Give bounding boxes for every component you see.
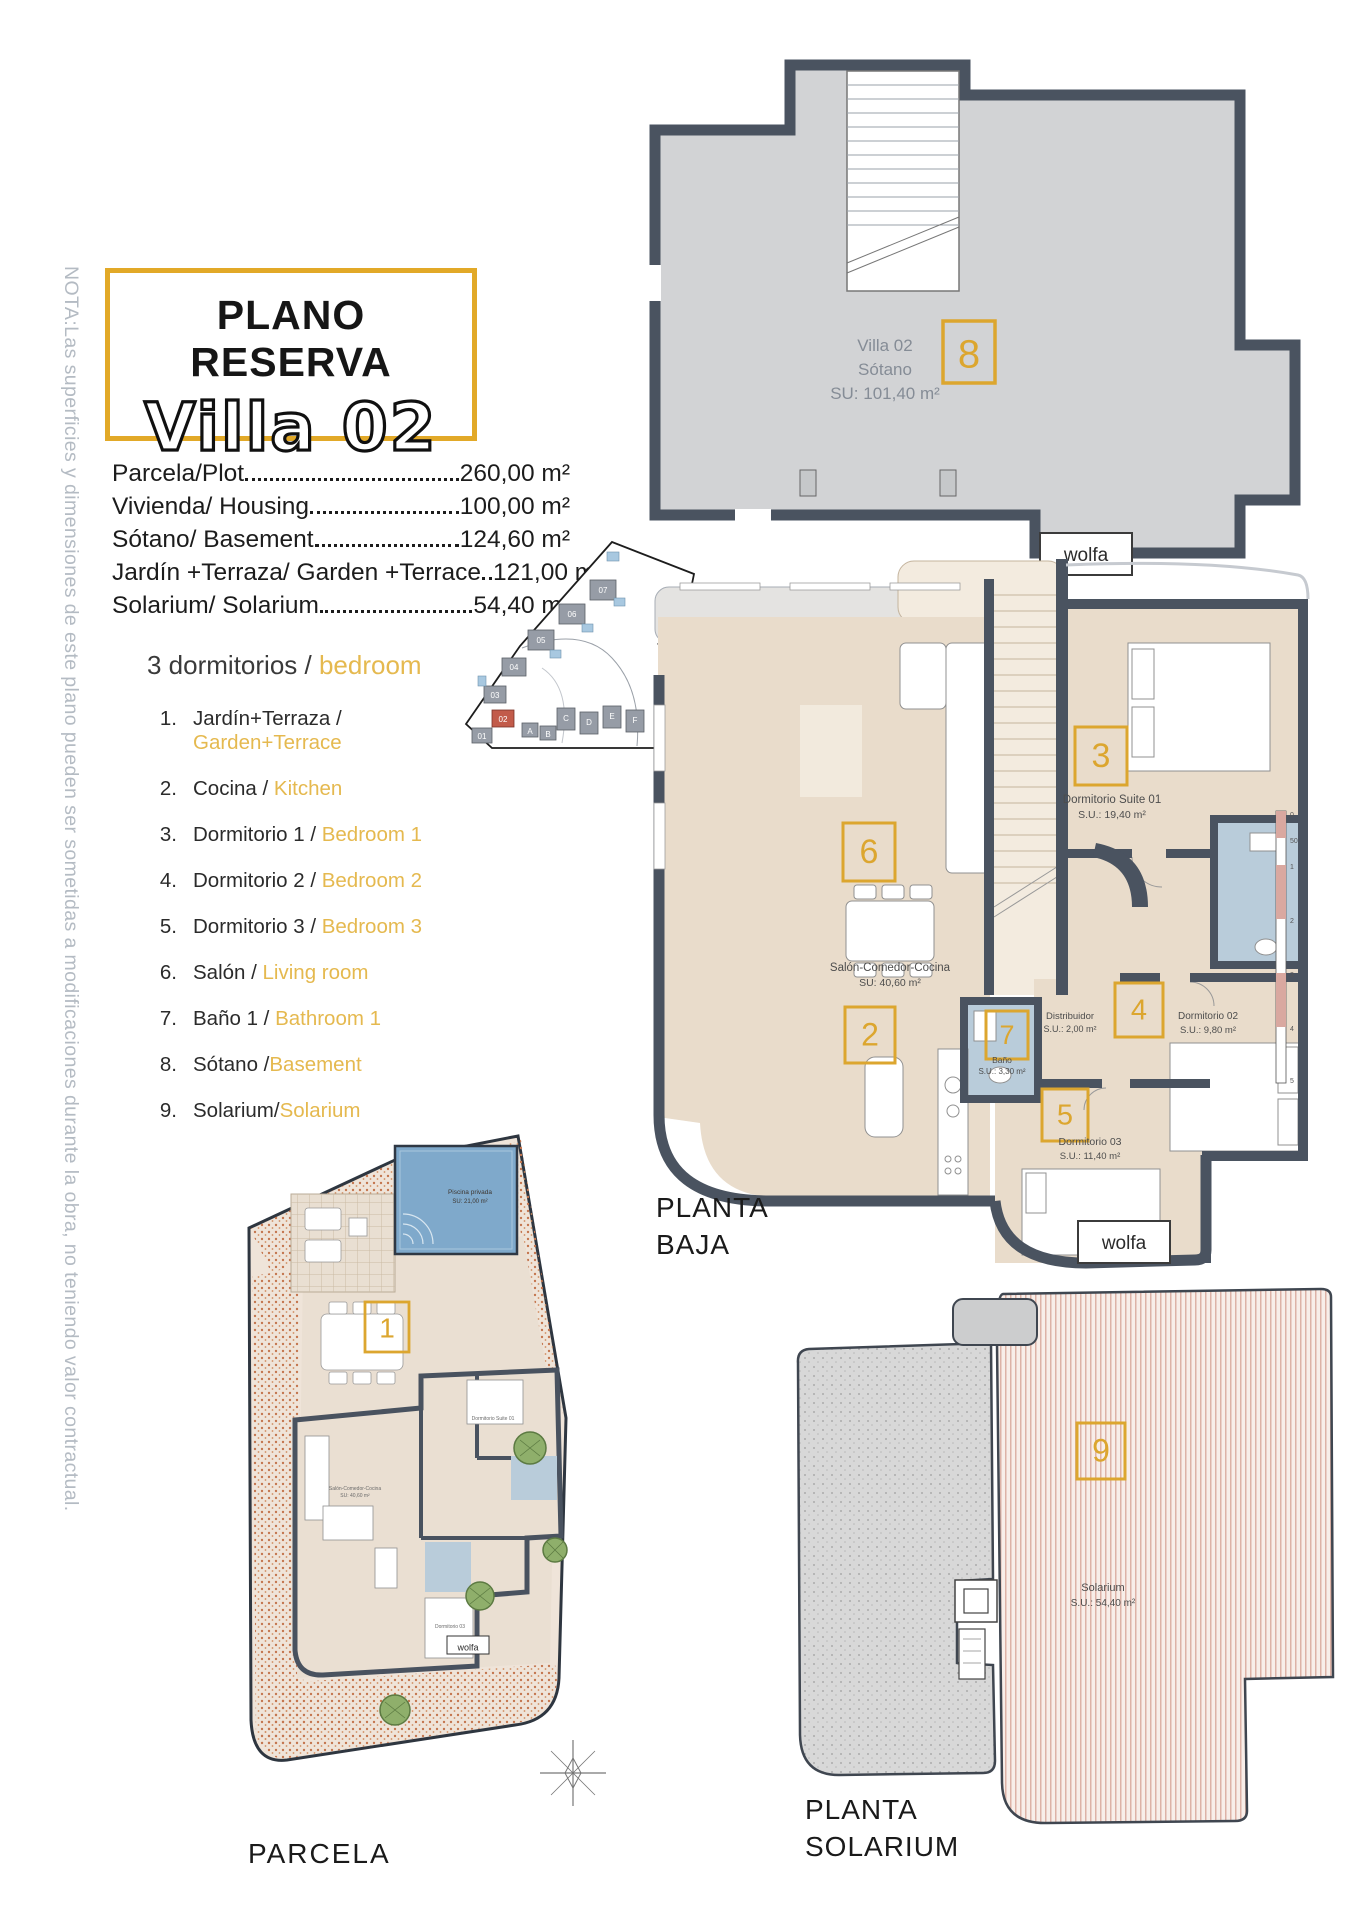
svg-text:F: F [633,716,638,725]
area-label: Parcela/Plot [112,460,244,487]
svg-text:Dormitorio Suite 01: Dormitorio Suite 01 [472,1416,515,1422]
svg-text:0: 0 [1290,812,1294,819]
terrace-windows [680,583,960,590]
legend-item-text: Salón / Living room [193,961,369,985]
lower-roof-terrace [798,1343,995,1775]
legend-item-text: Cocina / Kitchen [193,777,342,801]
side-table [349,1218,367,1236]
pool-label: Piscina privada [448,1189,492,1196]
dotted-leader [320,610,472,613]
svg-text:5: 5 [1057,1100,1073,1132]
legend-item-text: Dormitorio 3 / Bedroom 3 [193,915,422,939]
svg-text:S.U.: 9,80 m²: S.U.: 9,80 m² [1180,1025,1236,1036]
svg-text:01: 01 [478,732,487,741]
legend-item-en: Garden+Terrace [193,731,342,754]
legend-item-number: 1. [147,707,177,755]
svg-text:Dormitorio 02: Dormitorio 02 [1178,1011,1238,1022]
legend-item-en: Bedroom 2 [322,869,422,892]
solarium-caption: PLANTA SOLARIUM [805,1792,959,1866]
area-label: Sótano/ Basement [112,526,314,553]
staircase [847,71,959,291]
svg-text:50: 50 [1290,838,1298,845]
pergola-terrace [291,1194,395,1292]
legend-item-es: Dormitorio 3 / [193,915,322,938]
brand-label: wolfa [456,1642,478,1652]
svg-text:05: 05 [537,636,546,645]
svg-text:B: B [545,730,550,739]
legend-item: 7.Baño 1 / Bathroom 1 [147,1007,477,1031]
legend-item-number: 4. [147,869,177,893]
sofa [946,643,990,873]
roof-edge-line [1066,563,1308,599]
legend-item: 4.Dormitorio 2 / Bedroom 2 [147,869,477,893]
legend-item-text: Baño 1 / Bathroom 1 [193,1007,381,1031]
legend-item-text: Dormitorio 1 / Bedroom 1 [193,823,422,847]
caption-line: PLANTA [656,1190,769,1227]
area-value: 100,00 m² [460,493,570,520]
svg-text:Solarium: Solarium [1081,1582,1124,1594]
dining-table [846,901,934,961]
legend-item: 2.Cocina / Kitchen [147,777,477,801]
legend-item-number: 7. [147,1007,177,1031]
compass-rose [540,1740,606,1806]
svg-text:E: E [609,712,614,721]
legend-item-text: Jardín+Terraza / Garden+Terrace [193,707,477,755]
svg-text:4: 4 [1290,1026,1294,1033]
legend-item-number: 9. [147,1099,177,1123]
legend-item-en: Living room [263,961,369,984]
plot-plan: Piscina privada SU: 21,00 m² 1 [225,1118,610,1818]
svg-text:S.U.: 19,40 m²: S.U.: 19,40 m² [1078,809,1146,821]
svg-text:SU: 101,40 m²: SU: 101,40 m² [830,384,940,403]
svg-text:9: 9 [1092,1432,1110,1468]
mini-table [323,1506,373,1540]
caption-line: BAJA [656,1227,769,1264]
legend-item-es: Baño 1 / [193,1007,275,1030]
svg-text:Dormitorio 03: Dormitorio 03 [1058,1136,1121,1148]
svg-text:04: 04 [510,663,519,672]
area-row: Vivienda/ Housing 100,00 m² [112,493,570,520]
legend-item-es: Sótano / [193,1053,269,1076]
dotted-leader [315,544,459,547]
svg-text:C: C [563,714,569,723]
legend-item: 6.Salón / Living room [147,961,477,985]
sofa-chaise [900,643,946,709]
svg-text:7: 7 [999,1020,1014,1050]
svg-text:8: 8 [958,333,980,377]
basement-outline [655,65,1295,553]
svg-text:2: 2 [861,1016,879,1052]
svg-text:wolfa: wolfa [1101,1233,1147,1254]
svg-text:Baño: Baño [992,1055,1012,1065]
area-row: Parcela/Plot 260,00 m² [112,460,570,487]
svg-text:Villa 02: Villa 02 [857,336,912,355]
svg-text:1: 1 [1290,864,1294,871]
svg-text:4: 4 [1131,995,1147,1027]
legend-item-number: 6. [147,961,177,985]
svg-text:S.U.: 54,40 m²: S.U.: 54,40 m² [1071,1598,1136,1609]
svg-text:Salón-Comedor-Cocina: Salón-Comedor-Cocina [329,1486,381,1492]
legend-item-es: Jardín+Terraza / [193,707,342,730]
area-value: 260,00 m² [460,460,570,487]
suite-toilet [1255,939,1277,955]
svg-text:2: 2 [1290,918,1294,925]
svg-text:1: 1 [379,1312,395,1343]
dotted-leader [310,511,459,514]
svg-text:06: 06 [568,610,577,619]
caption-line: PLANTA [805,1792,959,1829]
svg-text:02: 02 [499,715,508,724]
title-box: PLANO RESERVA Villa 02 [105,268,477,441]
legend-item-text: Sótano /Basement [193,1053,362,1077]
legend-item-en: Kitchen [274,777,342,800]
svg-text:3: 3 [1290,972,1294,979]
legend-item: 3.Dormitorio 1 / Bedroom 1 [147,823,477,847]
plan-title: PLANO RESERVA [110,292,472,386]
svg-text:3: 3 [1092,737,1111,775]
svg-text:S.U.: 3,30 m²: S.U.: 3,30 m² [978,1067,1025,1076]
stair-bulkhead [953,1299,1037,1345]
area-label: Vivienda/ Housing [112,493,309,520]
rug [800,705,862,797]
svg-text:5: 5 [1290,1078,1294,1085]
brand-box: wolfa [1078,1221,1170,1263]
plan-sheet: NOTA:Las superficies y dimensiones de es… [0,0,1350,1920]
legend-item-en: Basement [269,1053,361,1076]
area-label: Solarium/ Solarium [112,592,319,619]
mini-island [375,1548,397,1588]
solarium-deck [997,1289,1333,1823]
svg-text:S.U.: 2,00 m²: S.U.: 2,00 m² [1043,1024,1096,1034]
legend-item-en: Bedroom 1 [322,823,422,846]
pool-area-label: SU: 21,00 m² [452,1199,487,1205]
kitchen-island [865,1057,903,1137]
svg-text:Sótano: Sótano [858,360,912,379]
svg-text:Dormitorio Suite 01: Dormitorio Suite 01 [1063,794,1161,806]
svg-text:6: 6 [860,833,879,871]
legend-item-es: Dormitorio 2 / [193,869,322,892]
lounger [305,1208,341,1230]
legend-item-en: Bathroom 1 [275,1007,381,1030]
svg-text:A: A [527,727,533,736]
caption-line: PARCELA [248,1836,391,1873]
svg-text:SU: 40,60 m²: SU: 40,60 m² [340,1493,370,1499]
svg-text:SU: 40,60 m²: SU: 40,60 m² [859,977,921,989]
legend-item-es: Salón / [193,961,263,984]
legend-heading-en: bedroom [319,650,422,680]
mini-bathroom [425,1542,471,1592]
caption-line: SOLARIUM [805,1829,959,1866]
legend-heading: 3 dormitorios / bedroom [147,650,477,681]
legend-item-en: Bedroom 3 [322,915,422,938]
plot-caption: PARCELA [248,1836,391,1873]
svg-text:03: 03 [491,691,500,700]
ground-floor-caption: PLANTA BAJA [656,1190,769,1264]
lounger [305,1240,341,1262]
legend-item-es: Cocina / [193,777,274,800]
svg-text:Salón-Comedor-Cocina: Salón-Comedor-Cocina [830,962,951,974]
legend-item: 8.Sótano /Basement [147,1053,477,1077]
legend-item-es: Dormitorio 1 / [193,823,322,846]
legend-item-number: 3. [147,823,177,847]
legend-item-number: 2. [147,777,177,801]
legend-item-number: 5. [147,915,177,939]
ground-floor-plan: 6 3 2 7 4 5 Dormitorio Suite 01 S.U.: 19… [650,555,1310,1275]
dotted-leader [245,478,459,481]
svg-text:Distribuidor: Distribuidor [1046,1011,1094,1022]
legend-item-number: 8. [147,1053,177,1077]
legend-item: 5.Dormitorio 3 / Bedroom 3 [147,915,477,939]
legend-item-text: Dormitorio 2 / Bedroom 2 [193,869,422,893]
area-label: Jardín +Terraza/ Garden +Terrace [112,559,481,586]
pool: Piscina privada SU: 21,00 m² [395,1146,517,1254]
legend-heading-es: 3 dormitorios / [147,650,319,680]
svg-text:Dormitorio 03: Dormitorio 03 [435,1624,465,1630]
svg-text:D: D [586,718,592,727]
vertical-disclaimer-note: NOTA:Las superficies y dimensiones de es… [59,266,82,1466]
svg-text:S.U.: 11,40 m²: S.U.: 11,40 m² [1060,1151,1121,1162]
villa-number-title: Villa 02 [110,389,472,466]
legend-item: 1.Jardín+Terraza / Garden+Terrace [147,707,477,755]
room-legend: 3 dormitorios / bedroom 1.Jardín+Terraza… [147,650,477,1145]
